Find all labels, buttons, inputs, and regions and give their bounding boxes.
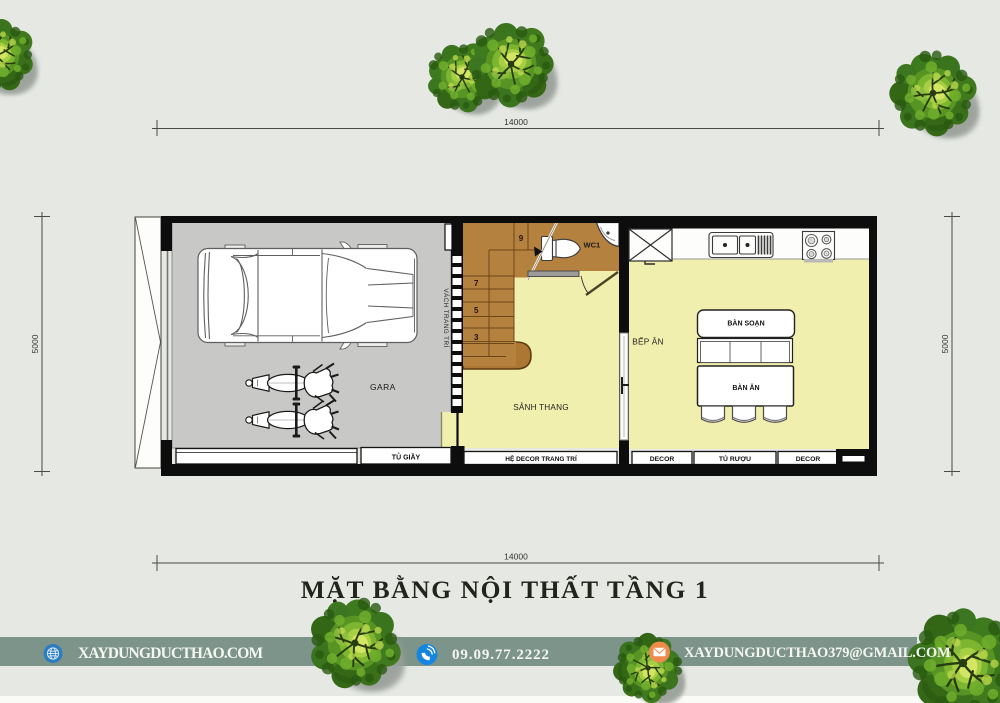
svg-text:BẾP ĂN: BẾP ĂN bbox=[632, 337, 663, 347]
svg-text:BÀN SOẠN: BÀN SOẠN bbox=[727, 319, 764, 328]
svg-text:WC1: WC1 bbox=[584, 241, 601, 250]
svg-text:5000: 5000 bbox=[940, 334, 950, 353]
svg-text:TỦ RƯỢU: TỦ RƯỢU bbox=[719, 454, 751, 463]
svg-text:GARA: GARA bbox=[370, 382, 396, 392]
svg-text:DECOR: DECOR bbox=[796, 456, 821, 463]
svg-text:7: 7 bbox=[474, 279, 479, 288]
svg-text:09.09.77.2222: 09.09.77.2222 bbox=[452, 647, 550, 663]
svg-text:XAYDUNGDUCTHAO379@GMAIL.COM: XAYDUNGDUCTHAO379@GMAIL.COM bbox=[684, 645, 951, 661]
svg-text:VÁCH TRANG TRÍ: VÁCH TRANG TRÍ bbox=[442, 288, 451, 347]
svg-text:14000: 14000 bbox=[504, 117, 528, 127]
svg-text:XAYDUNGDUCTHAO.COM: XAYDUNGDUCTHAO.COM bbox=[78, 645, 264, 662]
svg-text:5000: 5000 bbox=[30, 334, 40, 353]
svg-text:9: 9 bbox=[519, 234, 524, 243]
svg-text:DECOR: DECOR bbox=[650, 456, 675, 463]
svg-text:BÀN ĂN: BÀN ĂN bbox=[732, 383, 759, 392]
svg-text:14000: 14000 bbox=[504, 552, 528, 562]
svg-text:SẢNH THANG: SẢNH THANG bbox=[513, 401, 569, 412]
svg-text:5: 5 bbox=[474, 306, 479, 315]
svg-text:HỆ DECOR TRANG TRÍ: HỆ DECOR TRANG TRÍ bbox=[505, 454, 577, 463]
svg-text:3: 3 bbox=[474, 333, 479, 342]
